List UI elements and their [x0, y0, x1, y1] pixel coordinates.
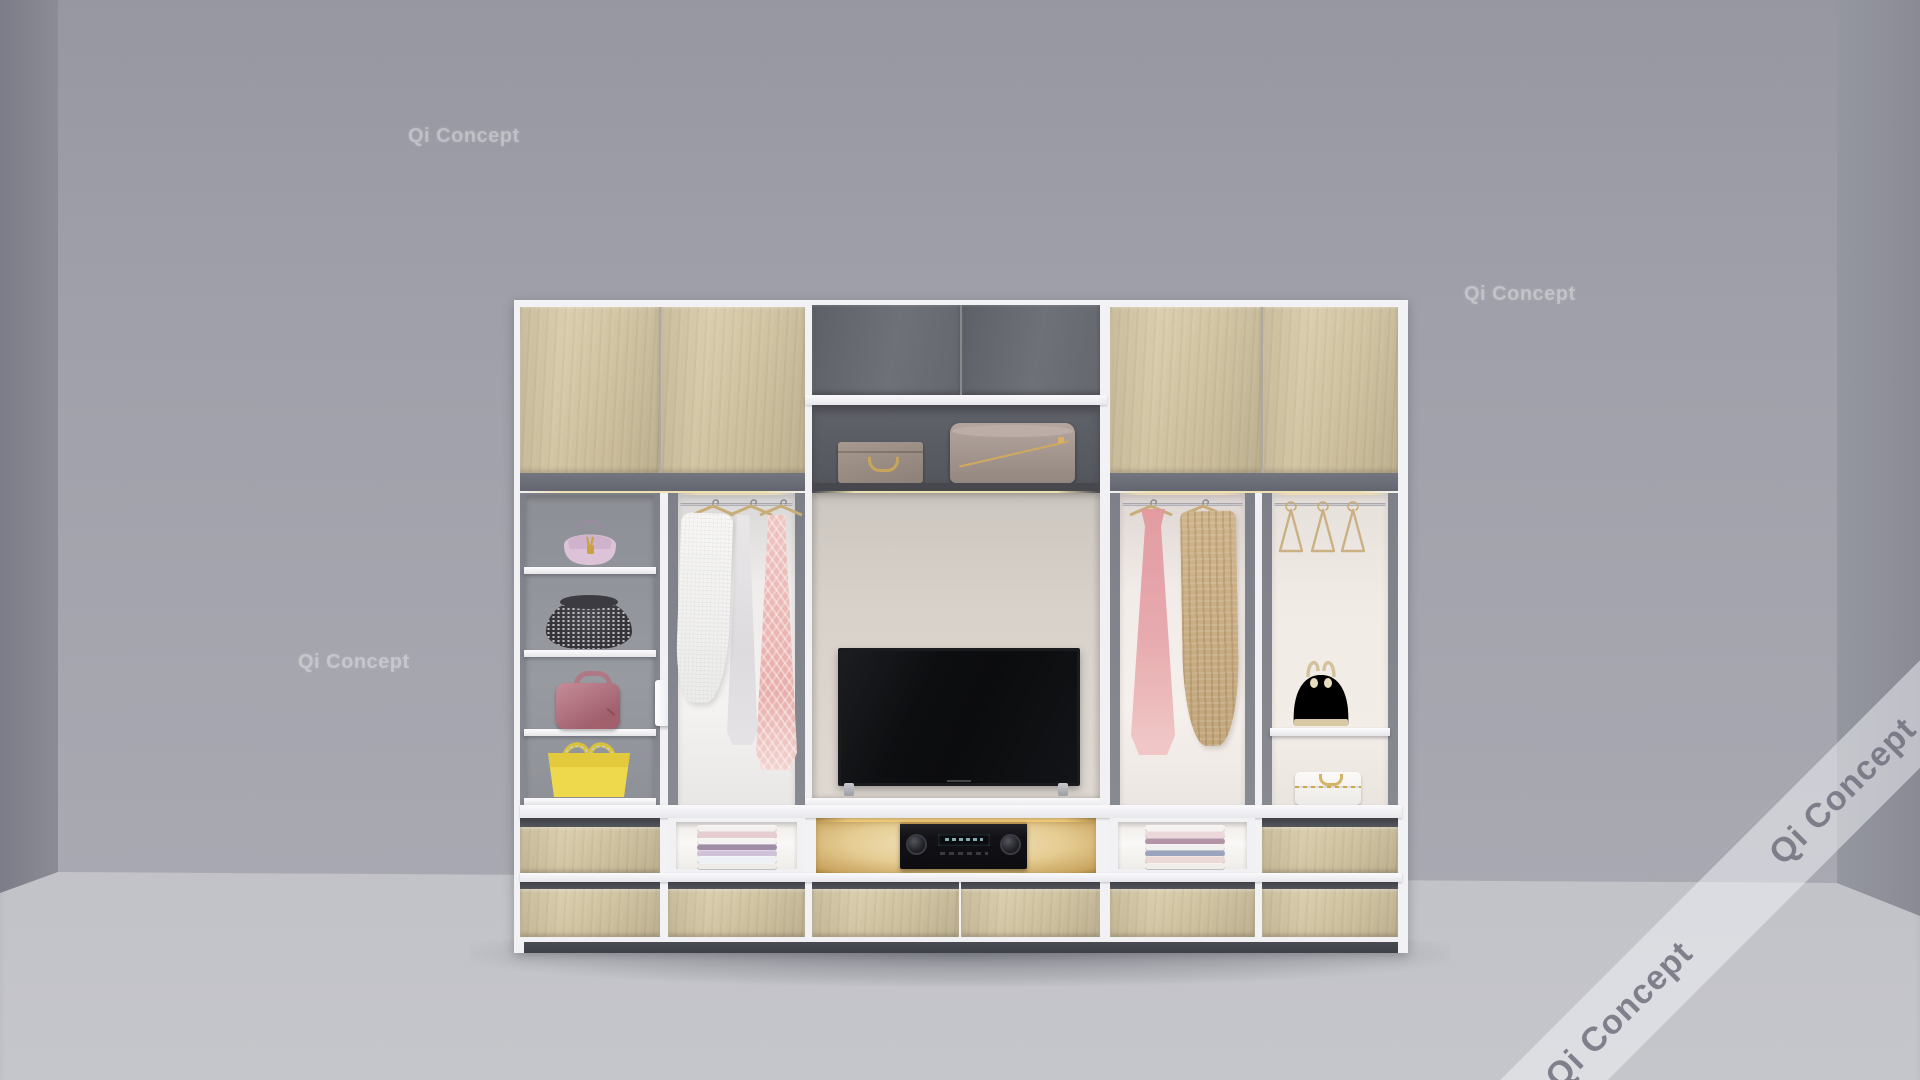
folded-garment — [1145, 856, 1225, 862]
drawer — [1262, 882, 1398, 937]
hanging-column-right — [1110, 493, 1255, 805]
cabinet-door — [1263, 307, 1398, 473]
cabinet-door — [1110, 307, 1261, 473]
cabinet-door-gray — [812, 305, 960, 395]
partition — [660, 493, 668, 818]
cabinet-door — [520, 307, 659, 473]
drawer-groove — [961, 882, 1100, 889]
plinth — [524, 942, 1398, 953]
under-cabinet-band-right — [1110, 473, 1398, 491]
drawer-groove — [668, 882, 805, 889]
pouch-patterned — [546, 599, 632, 649]
drawer-groove — [1110, 882, 1255, 889]
receiver-niche — [816, 818, 1096, 873]
open-niche — [668, 818, 805, 873]
wardrobe-unit — [514, 300, 1408, 953]
drawer-groove — [812, 882, 959, 889]
pouch-fold — [560, 595, 618, 609]
upper-cabinet-right — [1110, 307, 1398, 473]
hanging-column-left — [668, 493, 805, 805]
open-niche — [1110, 818, 1255, 873]
shelf-board — [524, 798, 656, 805]
drawer-front — [961, 889, 1100, 937]
folded-garment — [697, 831, 777, 837]
partition — [805, 493, 812, 818]
shelf-board — [524, 567, 656, 574]
horizontal-board — [520, 805, 1402, 818]
under-light — [1272, 493, 1388, 495]
hat-box-strap — [959, 440, 1069, 467]
drawer — [520, 882, 660, 937]
drawer — [520, 818, 660, 873]
tv-logo — [947, 780, 971, 782]
drawer-front — [812, 889, 959, 937]
drawer-front — [520, 889, 660, 937]
drawer — [961, 882, 1100, 937]
folded-clothes-stack — [1145, 825, 1225, 869]
drawer-groove — [1262, 818, 1398, 827]
drawer-front — [1110, 889, 1255, 937]
hat-box-buckle — [1058, 437, 1064, 443]
room-scene: Qi Concept Qi Concept Qi Concept Qi Conc… — [0, 0, 1920, 1080]
watermark-text: Qi Concept — [298, 651, 410, 674]
receiver-buttons — [940, 852, 988, 855]
upper-cabinet-center — [812, 305, 1100, 395]
cabinet-door-gray — [962, 305, 1100, 395]
receiver-knob-right — [1002, 836, 1019, 853]
av-receiver — [900, 822, 1027, 869]
handbag-brown-dome — [1290, 657, 1352, 728]
tote-yellow — [542, 739, 636, 798]
handbag-mauve — [556, 671, 620, 731]
center-shelf-board — [805, 395, 1107, 405]
watermark-text: Qi Concept — [408, 125, 520, 148]
folded-garment — [1145, 838, 1225, 844]
drawer — [812, 882, 959, 937]
drawer — [668, 882, 805, 937]
folded-garment — [697, 856, 777, 862]
hat-box — [950, 423, 1075, 483]
under-cabinet-band-left — [520, 473, 805, 491]
folded-garment — [1145, 863, 1225, 869]
receiver-knob-left — [908, 836, 925, 853]
box-niche — [812, 405, 1100, 493]
drawer — [1262, 818, 1398, 873]
partition — [1100, 493, 1110, 818]
folded-clothes-stack — [697, 825, 777, 869]
drawer-front — [1262, 889, 1398, 937]
empty-hanger-icon — [1340, 501, 1366, 562]
watermark-text: Qi Concept — [1464, 283, 1576, 306]
drawer-front — [520, 827, 660, 873]
upper-cabinet-left — [520, 307, 805, 473]
shelf-column — [520, 493, 660, 812]
hat-box-lid — [952, 425, 1073, 437]
drawer — [1110, 882, 1255, 937]
tv-foot-right — [1058, 783, 1068, 796]
receiver-display-text — [945, 838, 983, 841]
handbag-lilac — [560, 515, 620, 567]
storage-case-white — [1295, 772, 1361, 805]
tv-foot-left — [844, 783, 854, 796]
handbag-mauve-body — [556, 683, 620, 729]
drawer-groove — [520, 882, 660, 889]
folded-garment — [697, 863, 777, 869]
drawer-front — [1262, 827, 1398, 873]
case-seam — [1295, 786, 1361, 788]
case-handle — [1319, 774, 1343, 786]
shelf-board — [524, 650, 656, 657]
folded-garment — [1145, 831, 1225, 837]
tv-screen — [838, 648, 1080, 786]
empty-hanger-icon — [1310, 501, 1336, 562]
drawer-groove — [520, 818, 660, 827]
receiver-display — [938, 834, 990, 846]
drawer-groove — [1262, 882, 1398, 889]
folded-garment — [697, 838, 777, 844]
tv-niche — [812, 493, 1100, 798]
cabinet-door — [661, 307, 805, 473]
drawer-front — [668, 889, 805, 937]
storage-box-handle — [868, 457, 899, 472]
storage-box — [838, 442, 923, 483]
shelf-board — [1270, 728, 1390, 736]
storage-box-lid-line — [838, 451, 923, 453]
garment-tan-knit — [1180, 511, 1240, 747]
tv-screen-glow — [841, 651, 1077, 783]
partition — [1255, 493, 1262, 818]
accessory-column-right — [1262, 493, 1398, 812]
empty-hanger-icon — [1278, 501, 1304, 562]
horizontal-board — [520, 873, 1402, 882]
